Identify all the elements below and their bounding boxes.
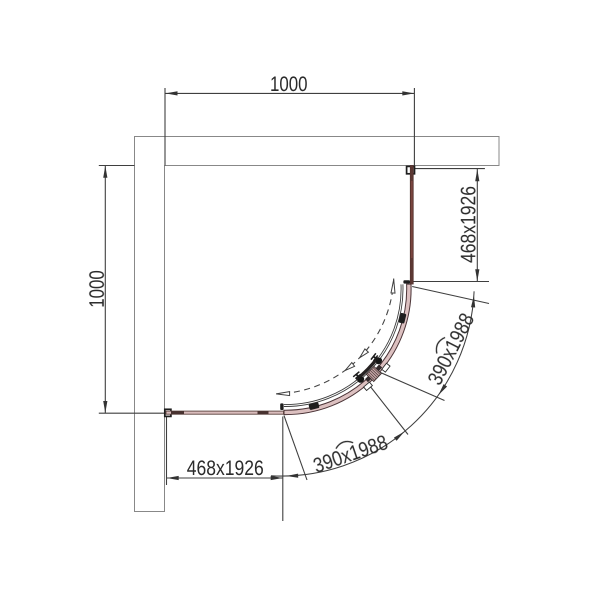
svg-text:468x1926: 468x1926 bbox=[457, 186, 480, 263]
svg-text:468x1926: 468x1926 bbox=[187, 457, 264, 480]
svg-text:1000: 1000 bbox=[270, 73, 308, 96]
svg-text:1000: 1000 bbox=[86, 270, 109, 308]
